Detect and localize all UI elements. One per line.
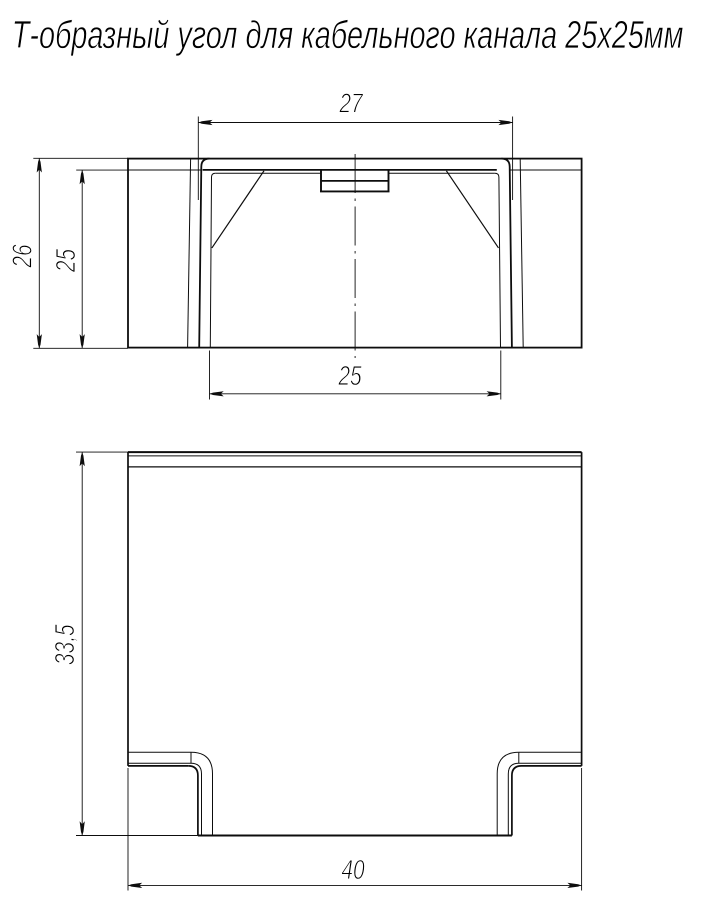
svg-text:25: 25 [337, 361, 361, 392]
svg-text:33,5: 33,5 [50, 624, 81, 665]
svg-text:27: 27 [338, 89, 363, 120]
svg-text:26: 26 [8, 244, 39, 268]
svg-text:40: 40 [341, 855, 365, 886]
svg-text:Т-образный угол для кабельного: Т-образный угол для кабельного канала 25… [12, 14, 684, 57]
svg-text:25: 25 [51, 249, 82, 273]
